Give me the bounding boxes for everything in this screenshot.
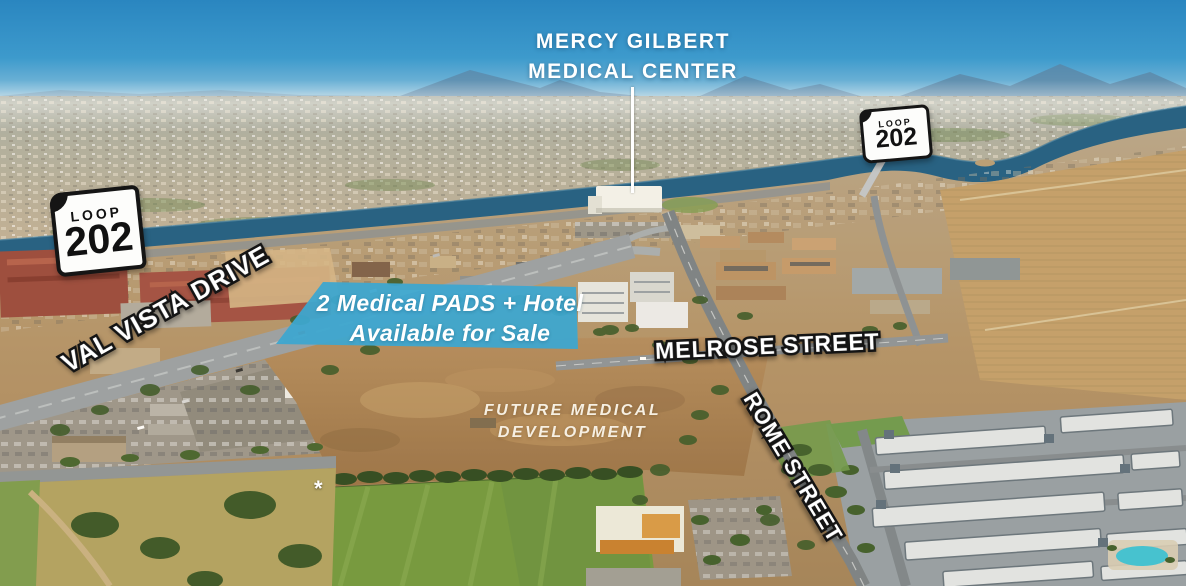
medical-center-callout: MERCY GILBERT MEDICAL CENTER xyxy=(497,27,769,88)
medical-center-label-line1: MERCY GILBERT xyxy=(497,27,769,57)
footnote-asterisk: * xyxy=(314,476,323,502)
sale-parcel-label: 2 Medical PADS + Hotel Available for Sal… xyxy=(295,289,605,349)
sale-parcel-label-line1: 2 Medical PADS + Hotel xyxy=(295,289,605,319)
medical-center-label-line2: MEDICAL CENTER xyxy=(497,57,769,87)
shield-route-number: 202 xyxy=(875,127,918,152)
medical-center-leader-line xyxy=(631,87,634,193)
shield-corner-notch xyxy=(49,192,70,213)
shield-route-number: 202 xyxy=(63,218,135,260)
annotation-layer: MERCY GILBERT MEDICAL CENTER LOOP 202 LO… xyxy=(0,0,1186,586)
aerial-site-photo: MERCY GILBERT MEDICAL CENTER LOOP 202 LO… xyxy=(0,0,1186,586)
loop-202-shield-right: LOOP 202 xyxy=(859,104,933,164)
street-label-rome-street: ROME STREET xyxy=(738,388,848,547)
future-development-label: FUTURE MEDICAL DEVELOPMENT xyxy=(440,400,705,445)
street-label-melrose-street: MELROSE STREET xyxy=(655,328,881,365)
future-development-line2: DEVELOPMENT xyxy=(440,422,705,444)
loop-202-shield-left: LOOP 202 xyxy=(49,185,147,278)
shield-corner-notch xyxy=(859,109,873,123)
future-development-line1: FUTURE MEDICAL xyxy=(440,400,705,422)
sale-parcel-label-line2: Available for Sale xyxy=(295,319,605,349)
